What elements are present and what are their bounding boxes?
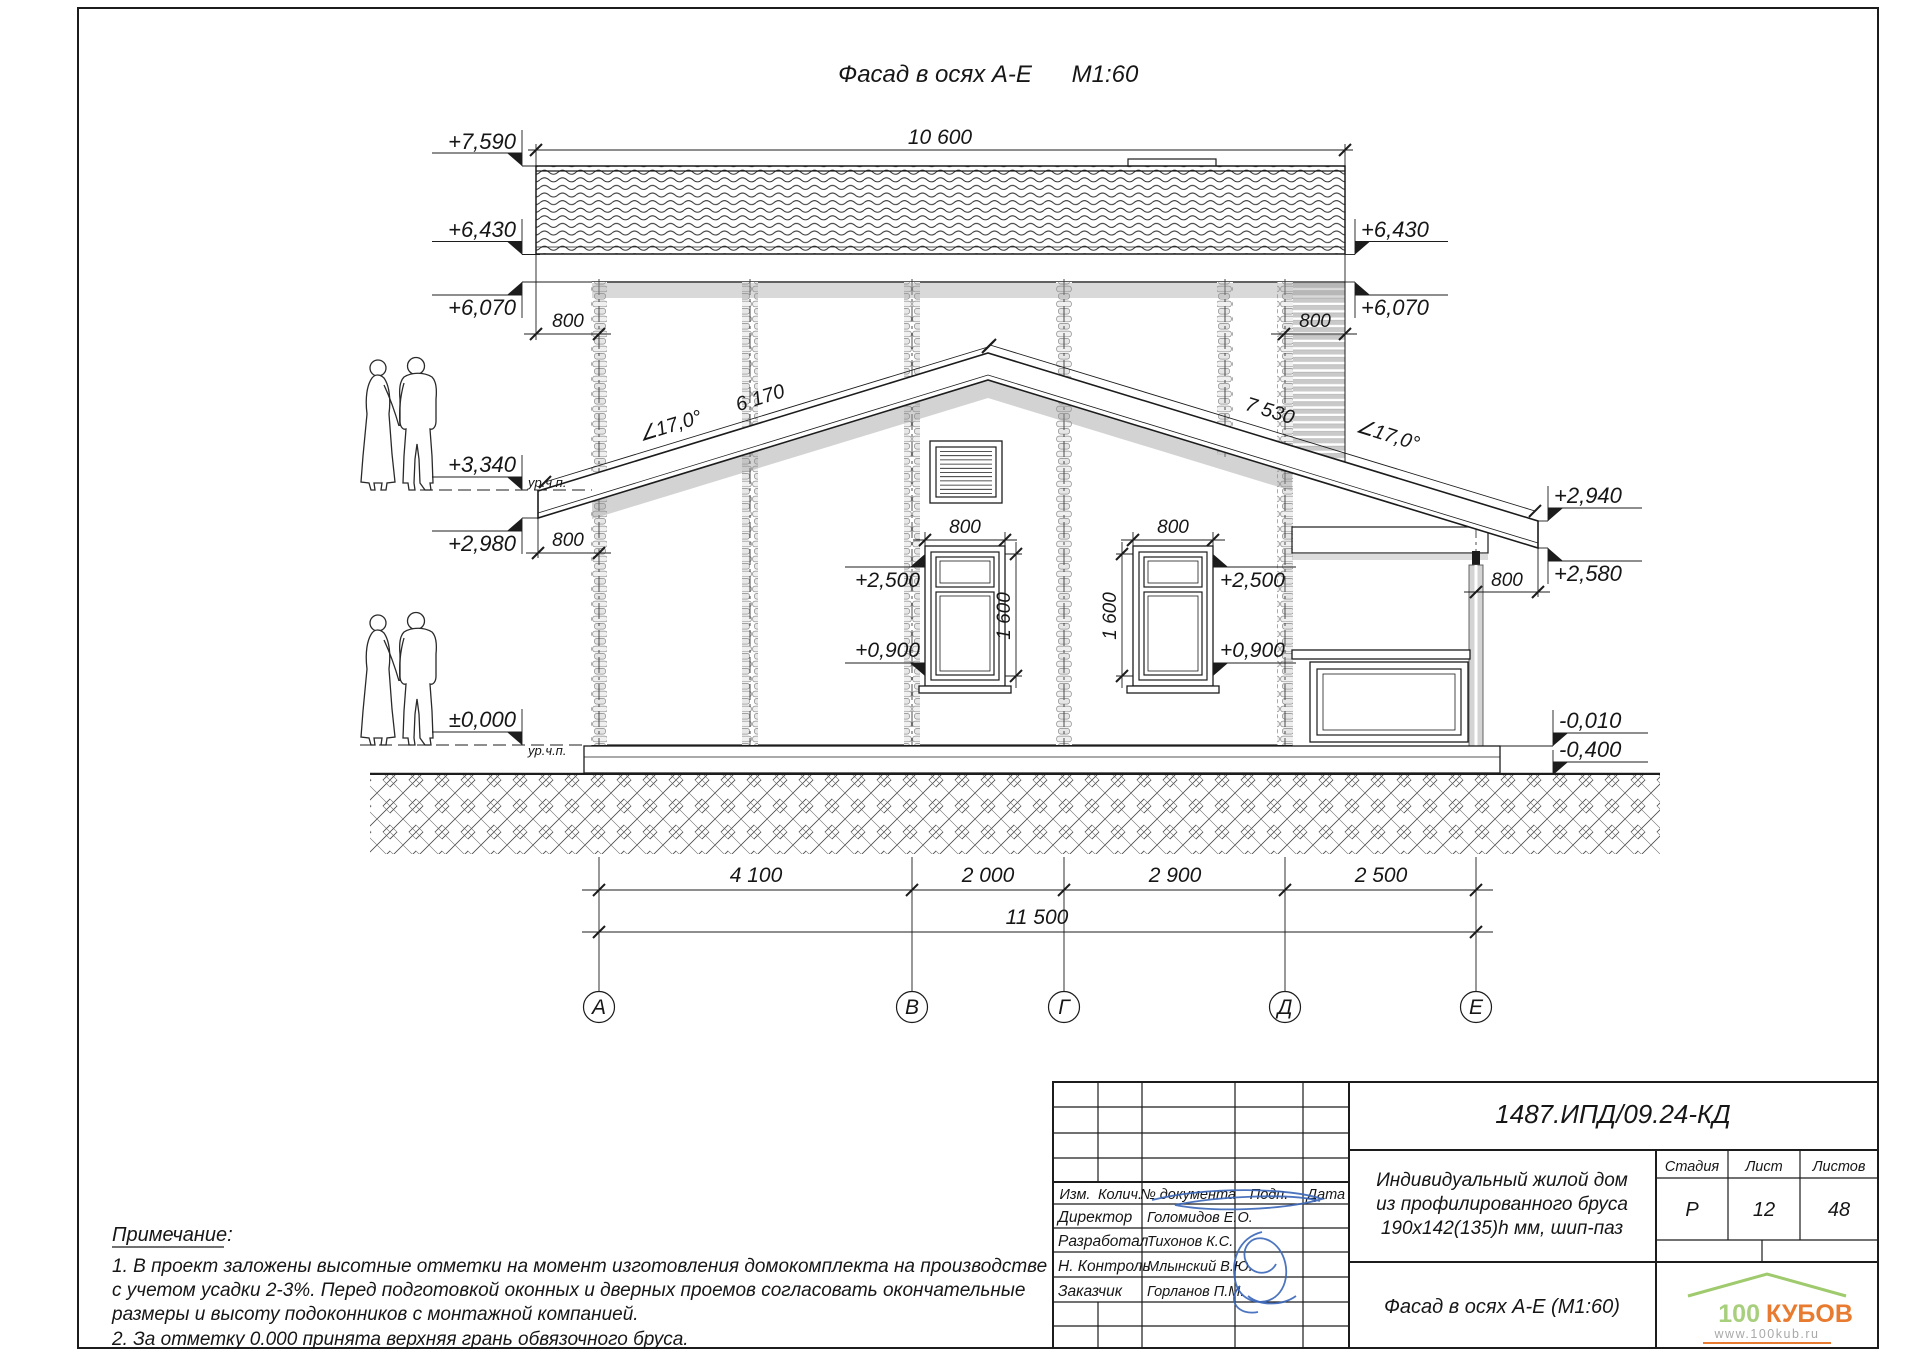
svg-text:+2,500: +2,500 xyxy=(855,569,920,592)
logo-kubov: КУБОВ xyxy=(1766,1300,1853,1328)
svg-text:+2,980: +2,980 xyxy=(448,531,517,556)
svg-text:1 600: 1 600 xyxy=(1100,592,1121,640)
logo-roof-icon xyxy=(1688,1274,1846,1296)
mark-canopy-top: +2,940 xyxy=(1538,483,1642,521)
svg-text:4 100: 4 100 xyxy=(730,864,783,887)
company-logo: 100 КУБОВ www.100kub.ru xyxy=(1688,1274,1853,1343)
svg-text:+7,590: +7,590 xyxy=(448,129,517,154)
gable-overhang-wall xyxy=(1292,282,1345,462)
overhang-left-top: 800 xyxy=(552,311,584,332)
svg-text:+6,430: +6,430 xyxy=(448,217,517,242)
note-line-2: с учетом усадки 2-3%. Перед подготовкой … xyxy=(112,1280,1025,1301)
svg-text:2 000: 2 000 xyxy=(961,864,1015,887)
ground-hatch xyxy=(370,775,1660,854)
vent-grille xyxy=(930,441,1002,503)
drawing-scale: М1:60 xyxy=(1072,61,1139,88)
sheets-label: Листов xyxy=(1812,1159,1866,1175)
sheet-title: Фасад в осях А-Е (М1:60) xyxy=(1384,1296,1620,1318)
project-line-1: Индивидуальный жилой дом xyxy=(1376,1170,1628,1191)
notes-block: Примечание: 1. В проект заложены высотны… xyxy=(111,1224,1047,1350)
axis-bubbles: А В Г Д Е xyxy=(584,992,1492,1023)
name-customer: Горланов П.М. xyxy=(1147,1284,1244,1300)
roof-angle-right: ∠17,0° xyxy=(1354,415,1422,455)
note-line-3: размеры и высоту подоконников с монтажно… xyxy=(111,1304,639,1325)
svg-text:11 500: 11 500 xyxy=(1006,906,1069,929)
svg-text:1 600: 1 600 xyxy=(994,592,1015,640)
canopy-roof xyxy=(538,353,1538,548)
title-block: Изм. Колич. № документа Подп. Дата Дирек… xyxy=(1053,1082,1878,1348)
window-1-sill xyxy=(919,686,1011,693)
svg-text:2 900: 2 900 xyxy=(1148,864,1202,887)
name-developer: Тихонов К.С. xyxy=(1147,1234,1233,1250)
mark-eaves-left: +6,430 xyxy=(432,217,540,255)
upper-roof xyxy=(536,159,1345,254)
sheets-value: 48 xyxy=(1828,1199,1850,1221)
dimension-axes: 4 100 2 000 2 900 2 500 11 500 А В Г Д Е xyxy=(582,857,1493,1023)
plinth xyxy=(584,746,1500,773)
floor-level-label-2: ур.ч.п. xyxy=(527,743,566,758)
svg-text:+2,580: +2,580 xyxy=(1554,561,1623,586)
role-director: Директор xyxy=(1056,1209,1133,1226)
logo-100: 100 xyxy=(1718,1300,1760,1328)
axis-b: В xyxy=(905,996,919,1019)
people-upper-level xyxy=(361,358,436,491)
roof-length-text: 10 600 xyxy=(908,126,973,149)
role-developer: Разработал xyxy=(1058,1233,1149,1250)
drawing-sheet: Фасад в осях А-Е М1:60 xyxy=(0,0,1920,1357)
col-izm: Изм. xyxy=(1060,1187,1091,1203)
roof-angle-left: ∠17,0° xyxy=(636,406,704,446)
svg-text:+2,500: +2,500 xyxy=(1220,569,1285,592)
svg-text:-0,010: -0,010 xyxy=(1559,708,1622,733)
notes-header: Примечание: xyxy=(112,1224,233,1246)
window-2 xyxy=(1127,546,1219,693)
people-ground-level xyxy=(361,613,436,746)
svg-text:-0,400: -0,400 xyxy=(1559,737,1622,762)
overhang-terrace: 800 xyxy=(1491,570,1523,591)
mark-ridge: +7,590 xyxy=(432,129,540,166)
note-line-1: 1. В проект заложены высотные отметки на… xyxy=(112,1256,1047,1277)
mark-floor2: +3,340 ур.ч.п. xyxy=(420,452,592,490)
axis-g: Г xyxy=(1058,996,1071,1019)
mark-eaves-right: +6,430 xyxy=(1345,217,1448,255)
terrace-beam xyxy=(1292,527,1488,553)
name-control: Млынский В.Ю. xyxy=(1147,1259,1253,1275)
axis-e: Е xyxy=(1469,996,1484,1019)
svg-text:+6,070: +6,070 xyxy=(448,295,517,320)
mark-canopy-bottom: +2,580 xyxy=(1538,548,1642,586)
terrace-post xyxy=(1469,551,1483,746)
overhang-right-top: 800 xyxy=(1299,311,1331,332)
post-jack xyxy=(1472,551,1480,565)
axis-a: А xyxy=(590,996,606,1019)
svg-text:+6,430: +6,430 xyxy=(1361,217,1430,242)
name-director: Голомидов Е.О. xyxy=(1147,1210,1253,1226)
project-line-2: из профилированного бруса xyxy=(1376,1194,1628,1215)
role-customer: Заказчик xyxy=(1058,1283,1123,1300)
stage-value: Р xyxy=(1685,1199,1699,1221)
window-2-sill xyxy=(1127,686,1219,693)
project-line-3: 190х142(135)h мм, шип-паз xyxy=(1381,1218,1623,1239)
doc-number: 1487.ИПД/09.24-КД xyxy=(1495,1099,1730,1129)
col-doc: № документа xyxy=(1140,1187,1236,1203)
logo-url: www.100kub.ru xyxy=(1714,1327,1820,1341)
axis-d: Д xyxy=(1276,996,1293,1019)
svg-text:+3,340: +3,340 xyxy=(448,452,517,477)
mark-canopy-left: +2,980 xyxy=(432,518,538,556)
svg-text:+0,900: +0,900 xyxy=(855,639,920,662)
svg-text:2 500: 2 500 xyxy=(1354,864,1408,887)
svg-text:+6,070: +6,070 xyxy=(1361,295,1430,320)
sheet-label: Лист xyxy=(1744,1159,1782,1175)
col-kolich: Колич. xyxy=(1098,1187,1142,1203)
svg-text:800: 800 xyxy=(949,517,981,538)
role-control: Н. Контроль xyxy=(1058,1258,1151,1275)
overhang-left-mid: 800 xyxy=(552,530,584,551)
svg-text:+2,940: +2,940 xyxy=(1554,483,1623,508)
terrace-railing xyxy=(1292,650,1470,742)
sheet-value: 12 xyxy=(1753,1199,1775,1221)
svg-text:±0,000: ±0,000 xyxy=(449,707,517,732)
cornice-shadow xyxy=(592,283,1345,298)
stage-label: Стадия xyxy=(1665,1159,1720,1175)
svg-text:800: 800 xyxy=(1157,517,1189,538)
mark-walltop-right: +6,070 xyxy=(1345,282,1448,320)
drawing-title: Фасад в осях А-Е xyxy=(838,61,1033,88)
svg-text:+0,900: +0,900 xyxy=(1220,639,1285,662)
note-line-4: 2. За отметку 0.000 принята верхняя гран… xyxy=(111,1329,689,1350)
facade-sheet-svg: Фасад в осях А-Е М1:60 xyxy=(0,0,1920,1357)
mark-ground: -0,400 xyxy=(1553,737,1648,775)
